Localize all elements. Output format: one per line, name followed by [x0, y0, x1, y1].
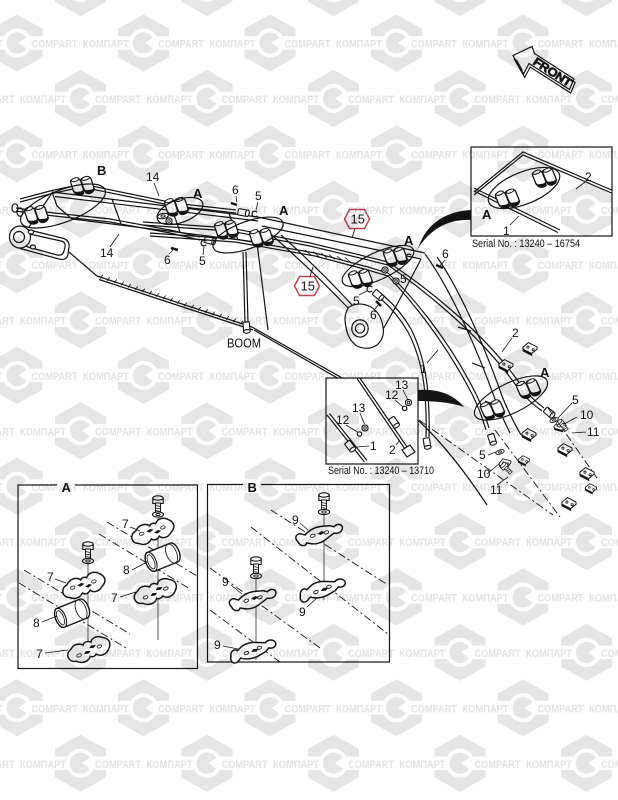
svg-text:5: 5 — [479, 448, 486, 462]
svg-text:B: B — [97, 163, 106, 178]
svg-text:8: 8 — [123, 563, 130, 577]
svg-text:BOOM: BOOM — [227, 337, 261, 351]
svg-text:7: 7 — [47, 570, 54, 584]
svg-text:1: 1 — [370, 439, 377, 453]
svg-text:9: 9 — [299, 605, 306, 619]
svg-text:1: 1 — [503, 224, 510, 238]
svg-text:9: 9 — [292, 513, 299, 527]
svg-text:15: 15 — [301, 279, 315, 294]
svg-text:2: 2 — [512, 326, 519, 340]
svg-text:9: 9 — [222, 575, 229, 589]
svg-text:13: 13 — [352, 401, 366, 415]
svg-text:7: 7 — [122, 517, 129, 531]
svg-text:6: 6 — [232, 183, 239, 197]
svg-text:5: 5 — [255, 189, 262, 203]
svg-text:2: 2 — [389, 443, 396, 457]
svg-text:8: 8 — [33, 616, 40, 630]
svg-text:5: 5 — [572, 393, 579, 407]
